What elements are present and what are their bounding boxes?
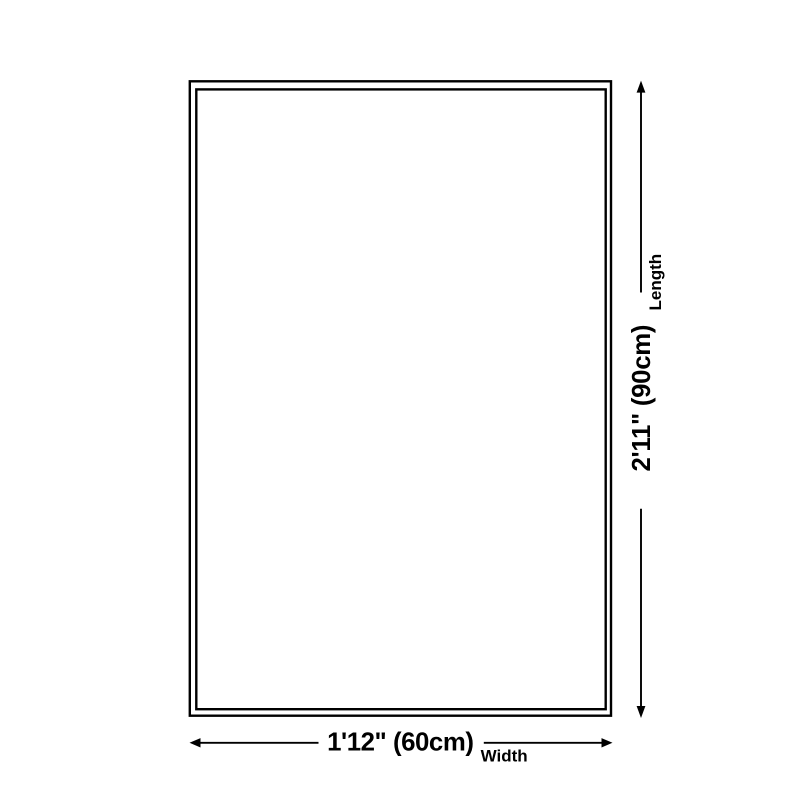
svg-text:2'11" (90cm): 2'11" (90cm) [628,325,656,472]
svg-text:1'12" (60cm): 1'12" (60cm) [327,729,473,757]
svg-text:Length: Length [646,254,665,311]
svg-text:Width: Width [481,747,528,766]
